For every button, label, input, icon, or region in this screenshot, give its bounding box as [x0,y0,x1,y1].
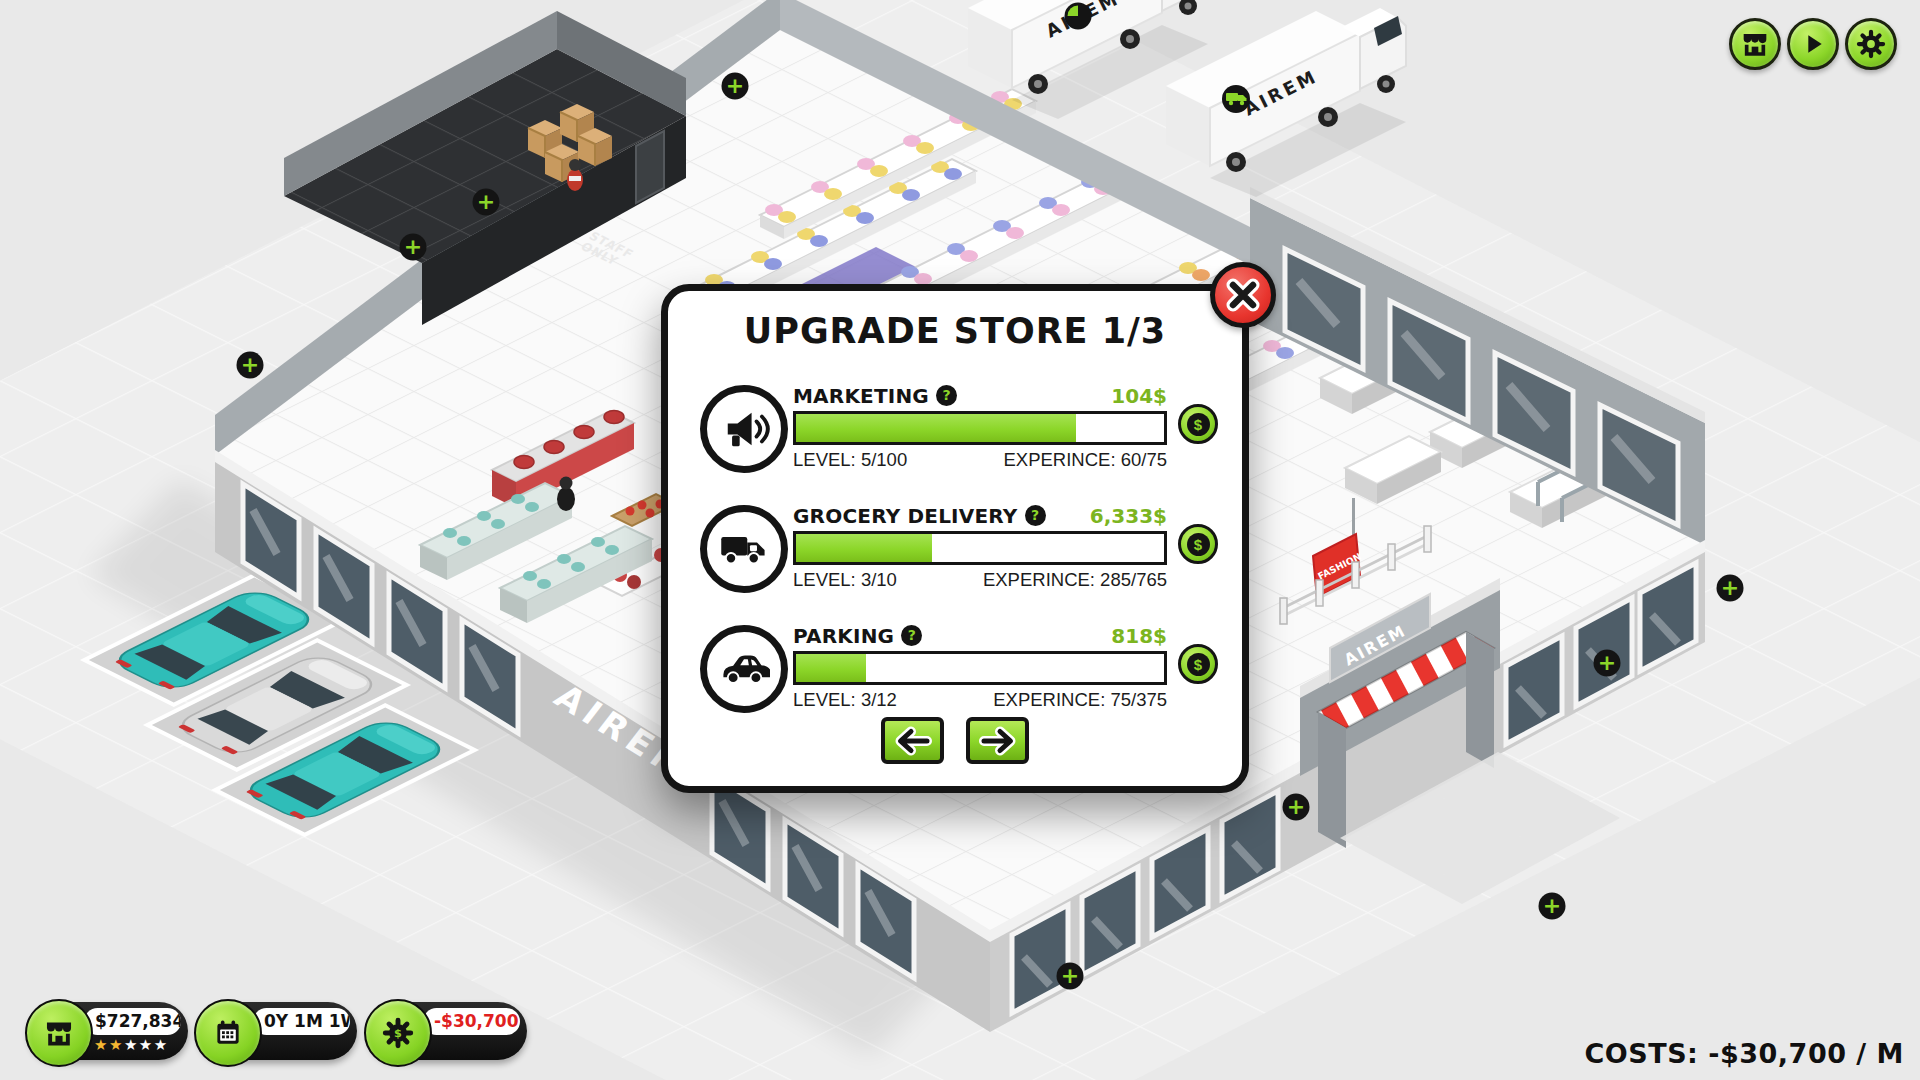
date-value: 0Y 1M 1W [253,1008,350,1035]
expand-plus-icon[interactable] [400,234,427,261]
prev-page-button[interactable] [881,717,944,764]
dialog-title: UPGRADE STORE 1/3 [668,311,1242,351]
store-icon [1739,28,1771,60]
expand-plus-icon[interactable] [473,189,500,216]
balance-pill[interactable]: -$30,700 $ [367,1002,527,1060]
level-text: LEVEL: 5/100 [793,449,907,471]
store-icon [25,999,93,1067]
dollar-icon: $ [1187,533,1210,556]
close-icon [1223,275,1263,315]
level-text: LEVEL: 3/12 [793,689,897,711]
upgrade-price: 818$ [1111,624,1167,648]
expand-plus-icon[interactable] [722,73,749,100]
expand-plus-icon[interactable] [1717,575,1744,602]
buy-upgrade-button[interactable]: $ [1178,644,1218,684]
date-pill[interactable]: 0Y 1M 1W [197,1002,357,1060]
experience-text: EXPERINCE: 60/75 [1004,449,1168,471]
progress-bar [793,531,1167,565]
help-icon[interactable]: ? [901,625,922,646]
store-button[interactable] [1729,18,1781,70]
gear-dollar-icon: $ [364,999,432,1067]
expand-plus-icon[interactable] [1057,963,1084,990]
star-empty-icon: ★ [139,1036,154,1054]
upgrade-row-grocery-delivery: GROCERY DELIVERY ? 6,333$ LEVEL: 3/10 EX… [700,503,1224,615]
buy-upgrade-button[interactable]: $ [1178,404,1218,444]
expand-plus-icon[interactable] [1594,650,1621,677]
expand-plus-icon[interactable] [1283,794,1310,821]
upgrade-row-marketing: MARKETING ? 104$ LEVEL: 5/100 EXPERINCE:… [700,383,1224,495]
car-icon [700,625,788,713]
buy-upgrade-button[interactable]: $ [1178,524,1218,564]
balance-value: -$30,700 [423,1008,520,1035]
svg-text:$: $ [394,1027,402,1040]
progress-bar [793,651,1167,685]
progress-bar-fill [796,534,932,562]
star-filled-icon: ★ [94,1036,109,1054]
costs-label: COSTS: -$30,700 / M [1585,1038,1905,1069]
upgrade-price: 104$ [1111,384,1167,408]
cardboard-box [578,128,612,166]
upgrade-name: MARKETING [793,384,929,408]
expand-plus-icon[interactable] [1539,893,1566,920]
progress-bar-fill [796,654,866,682]
money-value: $727,834 [84,1008,181,1035]
next-page-button[interactable] [966,717,1029,764]
experience-text: EXPERINCE: 75/375 [993,689,1167,711]
loading-progress-icon[interactable] [1065,3,1092,30]
progress-bar-fill [796,414,1076,442]
gear-icon [1854,27,1888,61]
level-text: LEVEL: 3/10 [793,569,897,591]
help-icon[interactable]: ? [936,385,957,406]
upgrade-name: GROCERY DELIVERY [793,504,1018,528]
dollar-icon: $ [1187,653,1210,676]
star-filled-icon: ★ [109,1036,124,1054]
truck-icon [700,505,788,593]
money-pill[interactable]: $727,834 ★★★★★ [28,1002,188,1060]
play-button[interactable] [1787,18,1839,70]
progress-bar [793,411,1167,445]
upgrade-price: 6,333$ [1090,504,1167,528]
calendar-icon [194,999,262,1067]
megaphone-icon [700,385,788,473]
staff-worker [567,159,583,191]
star-empty-icon: ★ [154,1036,169,1054]
star-rating: ★★★★★ [94,1035,169,1055]
experience-text: EXPERINCE: 285/765 [983,569,1167,591]
upgrade-store-dialog: UPGRADE STORE 1/3 MARKETING ? 104$ [661,284,1249,793]
settings-button[interactable] [1845,18,1897,70]
arrow-right-icon [976,726,1020,756]
dollar-icon: $ [1187,413,1210,436]
arrow-left-icon [891,726,935,756]
expand-plus-icon[interactable] [237,352,264,379]
upgrade-name: PARKING [793,624,894,648]
play-icon [1797,28,1829,60]
truck-status-icon[interactable] [1222,85,1250,113]
star-empty-icon: ★ [124,1036,139,1054]
help-icon[interactable]: ? [1025,505,1046,526]
shopper [557,477,575,512]
